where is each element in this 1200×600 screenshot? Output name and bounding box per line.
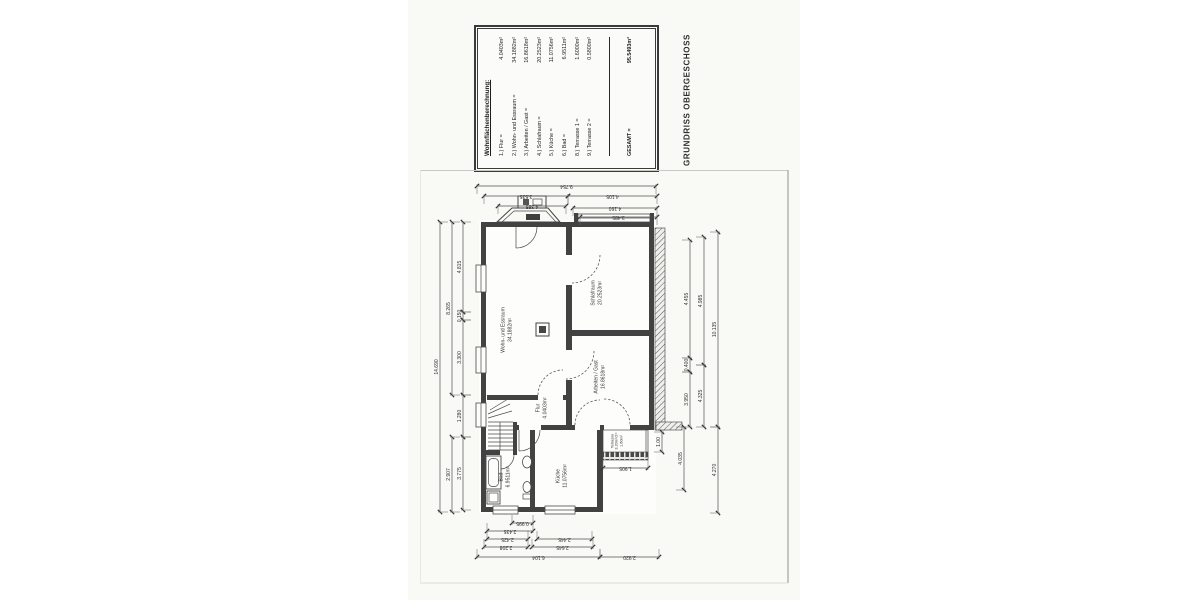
dim-label: 2.645 xyxy=(556,544,569,550)
floor-plan-drawing: 9.7543.5354.1054.3854.1603.4850.9952.435… xyxy=(420,170,800,588)
dim-label: 4.035 xyxy=(678,452,684,465)
room-label: Terrasse3.20m²/2=1.60m² xyxy=(610,432,623,449)
dim-label: 6.104 xyxy=(532,554,545,560)
dim-label: 4.270 xyxy=(712,464,718,477)
area-table-rows: 1.) Flur =4.0403m²2.) Wohn- und Essraum … xyxy=(496,37,597,156)
scanned-floorplan-page: Wohnflächenberechnung: 1.) Flur =4.0403m… xyxy=(0,0,1200,600)
dim-label: 0.150 xyxy=(457,310,463,323)
area-total-value: 95.5493m² xyxy=(624,37,637,63)
dim-label: 4.385 xyxy=(526,203,539,209)
dim-label: 1.905 xyxy=(619,465,632,471)
dim-label: 2.425 xyxy=(501,536,514,542)
dim-label: 4.455 xyxy=(684,293,690,306)
area-row: 5.) Küche =11.0756m² xyxy=(546,37,559,156)
room-label: Wohn- und Essraum34.1882m² xyxy=(501,307,514,352)
dim-label: 3.535 xyxy=(520,193,533,199)
area-total-row: GESAMT = 95.5493m² xyxy=(624,37,637,156)
dim-label: 4.985 xyxy=(698,295,704,308)
hatched-walls xyxy=(655,228,682,430)
room-label: Küche11.0756m² xyxy=(556,464,569,488)
dim-label: 2.920 xyxy=(623,554,636,560)
dim-label: 4.160 xyxy=(609,205,622,211)
area-calculation-table: Wohnflächenberechnung: 1.) Flur =4.0403m… xyxy=(474,25,659,172)
area-row: 3.) Arbeiten / Gast =16.8618m² xyxy=(521,37,534,156)
room-label: Arbeiten / Gast16.8618m² xyxy=(594,360,607,393)
area-row: 6.) Bad =6.9511m² xyxy=(559,37,572,156)
area-row: 8.) Terrasse 1 =1.6000m² xyxy=(572,37,585,156)
dim-label: 0.400 xyxy=(684,359,690,372)
dim-label: 4.105 xyxy=(606,193,619,199)
area-table-heading: Wohnflächenberechnung: xyxy=(484,37,491,156)
dim-label: 2.445 xyxy=(558,536,571,542)
dim-label: 4.815 xyxy=(457,261,463,274)
page-title: GRUNDRISS OBERGESCHOSS xyxy=(683,34,692,166)
dim-label: 3.775 xyxy=(457,467,463,480)
room-label: Bad6.9511m² xyxy=(499,467,512,488)
floor-plan: 9.7543.5354.1054.3854.1603.4850.9952.435… xyxy=(420,170,800,588)
room-label: Flur4.0403m² xyxy=(536,397,549,418)
dim-label: 3.950 xyxy=(684,393,690,406)
area-total-label: GESAMT = xyxy=(624,128,637,156)
dim-label: 9.754 xyxy=(560,183,573,189)
area-row: 4.) Schlafraum =20.2523m² xyxy=(534,37,547,156)
area-row: 2.) Wohn- und Essraum =34.1882m² xyxy=(509,37,522,156)
area-table-content: Wohnflächenberechnung: 1.) Flur =4.0403m… xyxy=(480,31,650,162)
dim-label: 0.995 xyxy=(516,520,529,526)
dim-label: 2.907 xyxy=(446,468,452,481)
area-row: 1.) Flur =4.0403m² xyxy=(496,37,509,156)
dim-label: 1.00 xyxy=(656,437,662,447)
dim-label: 8.265 xyxy=(446,302,452,315)
chimney-block xyxy=(536,323,549,336)
area-row: 9.) Terrasse 2 =0.5800m² xyxy=(584,37,597,156)
dim-label: 3.485 xyxy=(612,214,625,220)
table-divider xyxy=(609,37,610,156)
dim-label: 14.690 xyxy=(434,359,440,375)
dim-label: 10.135 xyxy=(712,322,718,338)
area-table-border: Wohnflächenberechnung: 1.) Flur =4.0403m… xyxy=(477,28,656,169)
dim-label: 3.300 xyxy=(457,351,463,364)
dim-label: 2.435 xyxy=(504,528,517,534)
dim-label: 1.280 xyxy=(457,410,463,423)
dim-label: 4.325 xyxy=(698,390,704,403)
room-label: Schlafraum20.2523m² xyxy=(591,280,604,305)
dim-label: 2.208 xyxy=(500,544,513,550)
